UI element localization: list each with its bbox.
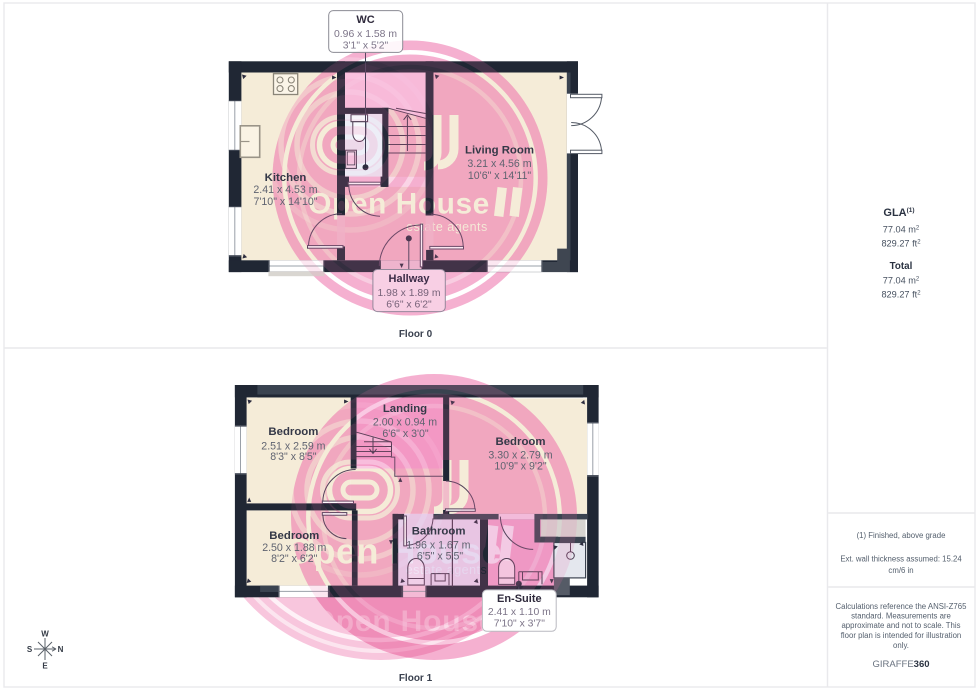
svg-text:2.41 x 4.53 m: 2.41 x 4.53 m [253, 184, 317, 196]
svg-text:Bathroom: Bathroom [412, 526, 466, 538]
svg-text:WC: WC [356, 14, 374, 26]
svg-text:Floor 1: Floor 1 [399, 673, 433, 684]
svg-text:E: E [42, 662, 48, 671]
svg-text:N: N [58, 645, 64, 654]
svg-text:approximate and not to scale.: approximate and not to scale. This [841, 621, 960, 630]
svg-text:7'10" x 14'10": 7'10" x 14'10" [254, 196, 318, 208]
svg-text:floor plan is intended for ill: floor plan is intended for illustration [841, 631, 962, 640]
svg-text:6'6" x 6'2": 6'6" x 6'2" [386, 299, 432, 310]
svg-text:Kitchen: Kitchen [265, 172, 307, 184]
svg-text:10'9" x 9'2": 10'9" x 9'2" [494, 461, 546, 473]
svg-text:Bedroom: Bedroom [496, 436, 546, 448]
svg-text:Total: Total [890, 261, 913, 272]
svg-text:8'2" x 6'2": 8'2" x 6'2" [271, 553, 318, 565]
svg-text:8'3" x 8'5": 8'3" x 8'5" [270, 451, 317, 463]
svg-text:Calculations reference the ANS: Calculations reference the ANSI-Z765 [836, 602, 968, 611]
svg-text:Landing: Landing [383, 403, 427, 415]
svg-text:0.96 x 1.58 m: 0.96 x 1.58 m [334, 29, 397, 40]
svg-text:Ext. wall thickness assumed: 1: Ext. wall thickness assumed: 15.24 [840, 555, 962, 564]
svg-text:3'1" x 5'2": 3'1" x 5'2" [343, 41, 389, 52]
svg-text:10'6" x 14'11": 10'6" x 14'11" [468, 170, 531, 182]
svg-text:(1) Finished, above grade: (1) Finished, above grade [857, 531, 946, 540]
svg-text:cm/6 in: cm/6 in [888, 566, 913, 575]
svg-text:Bedroom: Bedroom [269, 530, 319, 542]
svg-text:6'6" x 3'0": 6'6" x 3'0" [382, 428, 429, 440]
svg-text:W: W [41, 630, 49, 639]
svg-text:GIRAFFE360: GIRAFFE360 [872, 659, 929, 670]
svg-text:standard. Measurements are: standard. Measurements are [851, 612, 951, 621]
svg-text:829.27 ft2: 829.27 ft2 [881, 290, 921, 300]
svg-text:829.27 ft2: 829.27 ft2 [881, 239, 921, 249]
svg-text:En-Suite: En-Suite [497, 593, 542, 605]
svg-text:Living Room: Living Room [465, 144, 534, 156]
svg-text:Bedroom: Bedroom [268, 426, 318, 438]
svg-text:77.04 m2: 77.04 m2 [883, 276, 920, 286]
svg-text:only.: only. [893, 641, 909, 650]
svg-text:Floor 0: Floor 0 [399, 329, 433, 340]
svg-text:7'10" x 3'7": 7'10" x 3'7" [494, 618, 546, 629]
svg-text:1.98 x 1.89 m: 1.98 x 1.89 m [378, 288, 441, 299]
svg-text:77.04 m2: 77.04 m2 [883, 225, 920, 235]
svg-text:Hallway: Hallway [389, 273, 431, 285]
svg-text:2.00 x 0.94 m: 2.00 x 0.94 m [373, 417, 437, 429]
svg-text:3.21 x 4.56 m: 3.21 x 4.56 m [467, 158, 531, 170]
svg-text:6'5" x 5'5": 6'5" x 5'5" [417, 550, 464, 562]
svg-text:2.41 x 1.10 m: 2.41 x 1.10 m [488, 607, 551, 618]
svg-text:S: S [27, 645, 33, 654]
